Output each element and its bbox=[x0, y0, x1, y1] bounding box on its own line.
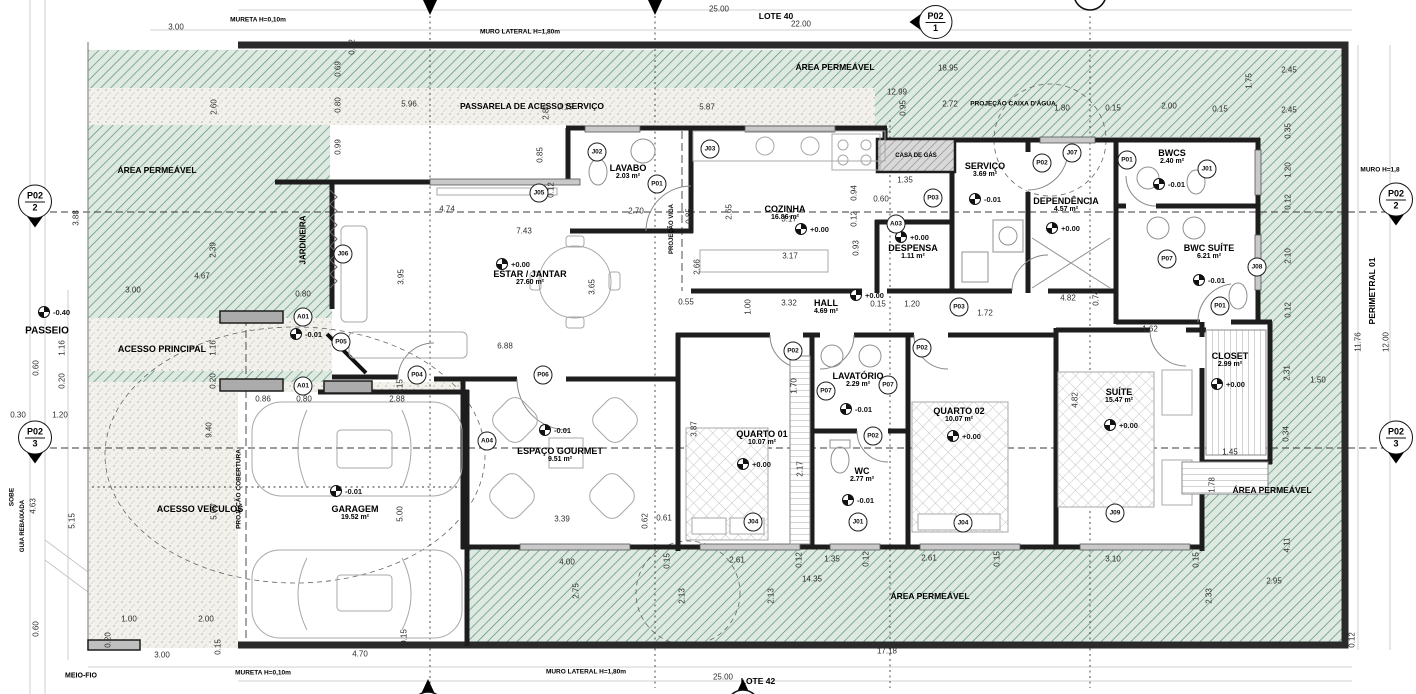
dimension-text: 2.80 bbox=[542, 104, 551, 120]
door-window-marker: P02 bbox=[784, 342, 803, 361]
door-window-marker: J01 bbox=[849, 513, 868, 532]
dimension-text: 0.15 bbox=[396, 379, 405, 395]
dimension-text: 25.00 bbox=[713, 673, 733, 682]
level-value: +0.00 bbox=[1119, 421, 1138, 430]
dimension-text: 1.00 bbox=[121, 615, 137, 624]
section-id: P02 bbox=[25, 427, 45, 438]
closet-shelves bbox=[1206, 330, 1266, 455]
room-name: COZINHA bbox=[765, 204, 806, 214]
room-area: 2.99 m² bbox=[1212, 361, 1249, 369]
dimension-text: 3.95 bbox=[397, 269, 406, 285]
dimension-text: 0.80 bbox=[295, 290, 311, 299]
room-name: HALL bbox=[814, 298, 838, 308]
level-symbol-icon bbox=[737, 458, 749, 470]
level-marker: -0.40 bbox=[38, 306, 70, 318]
mureta-label-top: MURETA H=0,10m bbox=[230, 17, 286, 24]
dimension-text: 4.82 bbox=[1071, 392, 1080, 408]
section-id: P02 bbox=[925, 12, 945, 23]
level-symbol-icon bbox=[850, 289, 862, 301]
door-window-marker: J05 bbox=[530, 184, 549, 203]
dimension-text: 0.15 bbox=[1192, 552, 1201, 568]
dimension-text: 11.76 bbox=[1354, 332, 1363, 351]
dimension-text: 3.39 bbox=[554, 515, 570, 524]
perimetral-label: PERIMETRAL 01 bbox=[1367, 258, 1377, 325]
dimension-text: 0.61 bbox=[656, 514, 672, 523]
level-symbol-icon bbox=[1153, 178, 1165, 190]
meio-fio-label: MEIO-FIO bbox=[65, 673, 97, 680]
dimension-text: 5.15 bbox=[68, 513, 77, 529]
section-circle: P023 bbox=[18, 421, 52, 455]
room-area: 4.69 m² bbox=[814, 308, 838, 316]
level-symbol-icon bbox=[842, 494, 854, 506]
level-marker: -0.01 bbox=[842, 494, 874, 506]
room-area: 15.47 m² bbox=[1105, 397, 1133, 405]
dimension-text: 2.60 bbox=[210, 99, 219, 115]
dimension-text: 0.80 bbox=[334, 97, 343, 113]
section-number: 3 bbox=[1393, 438, 1398, 448]
door-window-marker: A03 bbox=[887, 215, 906, 234]
dimension-text: 0.15 bbox=[993, 551, 1002, 567]
level-marker: -0.01 bbox=[840, 403, 872, 415]
lote-42-label: LOTE 42 bbox=[741, 676, 775, 686]
section-circle: P023 bbox=[1379, 421, 1413, 455]
dimension-text: 4.82 bbox=[1060, 294, 1076, 303]
section-id: P02 bbox=[1386, 189, 1406, 200]
dimension-text: 0.94 bbox=[850, 185, 859, 201]
level-symbol-icon bbox=[1193, 274, 1205, 286]
dimension-text: 0.34 bbox=[1282, 426, 1291, 442]
door-window-marker: P07 bbox=[817, 382, 836, 401]
dimension-text: 2.45 bbox=[1281, 66, 1297, 75]
dimension-text: 0.15 bbox=[557, 103, 573, 112]
level-marker: +0.00 bbox=[947, 430, 981, 442]
level-marker: -0.01 bbox=[969, 193, 1001, 205]
level-marker: -0.01 bbox=[330, 485, 362, 497]
room-name: QUARTO 01 bbox=[736, 429, 787, 439]
dimension-text: 2.10 bbox=[1284, 248, 1293, 264]
dimension-text: 1.62 bbox=[1142, 325, 1158, 334]
dimension-text: 3.87 bbox=[690, 421, 699, 437]
door-window-marker: P06 bbox=[534, 366, 553, 385]
area-permeavel-label-right: ÁREA PERMEÁVEL bbox=[1232, 485, 1311, 495]
level-value: +0.00 bbox=[1061, 224, 1080, 233]
door-window-marker: P04 bbox=[408, 366, 427, 385]
section-cut-marker: P021 bbox=[910, 5, 953, 39]
dimension-text: 0.20 bbox=[209, 373, 218, 389]
dimension-text: 0.85 bbox=[685, 208, 694, 224]
level-value: +0.00 bbox=[910, 233, 929, 242]
dimension-text: 1.20 bbox=[904, 300, 920, 309]
dimension-text: 0.93 bbox=[852, 240, 861, 256]
room-name: DESPENSA bbox=[888, 243, 938, 253]
dimension-text: 0.74 bbox=[1092, 290, 1101, 306]
room-area: 2.29 m² bbox=[833, 381, 884, 389]
sobe-label: SOBE bbox=[9, 488, 16, 506]
room-area: 3.69 m² bbox=[965, 171, 1005, 179]
door-window-marker: P03 bbox=[950, 298, 969, 317]
dimension-text: 3.88 bbox=[72, 210, 81, 226]
dimension-text: 0.12 bbox=[1284, 302, 1293, 318]
dimension-text: 5.96 bbox=[401, 100, 417, 109]
room-label: CLOSET2.99 m² bbox=[1212, 351, 1249, 369]
dimension-text: 1.16 bbox=[58, 340, 67, 356]
door-window-marker: P01 bbox=[648, 175, 667, 194]
dimension-text: 1.20 bbox=[52, 411, 68, 420]
dimension-text: 3.17 bbox=[782, 252, 798, 261]
dimension-text: 0.12 bbox=[1348, 632, 1357, 648]
door-window-marker: P07 bbox=[1158, 250, 1177, 269]
dimension-text: 0.60 bbox=[873, 195, 889, 204]
room-label: ESTAR / JANTAR27.60 m² bbox=[493, 269, 566, 287]
level-marker: -0.01 bbox=[290, 328, 322, 340]
section-id: P02 bbox=[25, 191, 45, 202]
level-value: +0.00 bbox=[1226, 380, 1245, 389]
projecao-cobertura-label: PROJEÇÃO COBERTURA bbox=[236, 449, 243, 529]
dimension-text: 1.78 bbox=[1208, 477, 1217, 493]
room-label: LAVATÓRIO2.29 m² bbox=[833, 371, 884, 389]
dimension-text: 5.00 bbox=[210, 504, 219, 520]
dimension-text: 0.85 bbox=[536, 147, 545, 163]
level-value: -0.01 bbox=[857, 496, 874, 505]
dimension-text: 2.31 bbox=[1283, 365, 1292, 381]
dimension-text: 0.12 bbox=[795, 552, 804, 568]
room-name: BWC SUÍTE bbox=[1184, 243, 1235, 253]
dimension-text: 3.00 bbox=[154, 651, 170, 660]
door-window-marker: J01 bbox=[1198, 160, 1217, 179]
dimension-text: 2.61 bbox=[921, 554, 937, 563]
dimension-text: 2.00 bbox=[1161, 102, 1177, 111]
room-name: CLOSET bbox=[1212, 351, 1249, 361]
room-area: 2.03 m² bbox=[610, 173, 647, 181]
door-window-marker: P02 bbox=[1033, 154, 1052, 173]
level-value: +0.00 bbox=[752, 460, 771, 469]
dimension-text: 2.45 bbox=[1281, 106, 1297, 115]
door-window-marker: J08 bbox=[1248, 258, 1267, 277]
room-area: 10.07 m² bbox=[736, 439, 787, 447]
dimension-text: 25.00 bbox=[709, 5, 729, 14]
dimension-text: 4.70 bbox=[352, 650, 368, 659]
room-name: ESTAR / JANTAR bbox=[493, 269, 566, 279]
mureta-label-bottom: MURETA H=0,10m bbox=[235, 670, 291, 677]
level-value: -0.40 bbox=[53, 308, 70, 317]
room-label: GARAGEM19.52 m² bbox=[332, 504, 379, 522]
door-window-marker: J09 bbox=[1106, 504, 1125, 523]
dimension-text: 0.15 bbox=[214, 639, 223, 655]
level-value: +0.00 bbox=[810, 225, 829, 234]
door-window-marker: A01 bbox=[294, 308, 313, 327]
dimension-text: 0.35 bbox=[1284, 123, 1293, 139]
dimension-text: 0.15 bbox=[400, 629, 409, 645]
dimension-text: 1.35 bbox=[897, 176, 913, 185]
level-value: -0.01 bbox=[855, 405, 872, 414]
dimension-text: 12.00 bbox=[1382, 332, 1391, 352]
level-marker: +0.00 bbox=[737, 458, 771, 470]
level-marker: +0.00 bbox=[895, 231, 929, 243]
level-value: -0.01 bbox=[984, 195, 1001, 204]
muro-direito-label: MURO H=1,8 bbox=[1360, 167, 1399, 174]
dimension-text: 2.00 bbox=[198, 615, 214, 624]
dimension-text: 0.60 bbox=[32, 621, 41, 637]
section-cut-marker: P023 bbox=[18, 421, 52, 464]
dimension-text: 4.00 bbox=[559, 558, 575, 567]
jardineira-label: JARDINEIRA bbox=[299, 216, 308, 265]
level-symbol-icon bbox=[840, 403, 852, 415]
door-window-marker: J02 bbox=[588, 143, 607, 162]
dimension-text: 1.00 bbox=[744, 299, 753, 315]
level-symbol-icon bbox=[539, 424, 551, 436]
dimension-text: 0.60 bbox=[32, 360, 41, 376]
dimension-text: 5.00 bbox=[396, 506, 405, 522]
section-cut-marker: P022 bbox=[18, 185, 52, 228]
dimension-text: 0.55 bbox=[678, 298, 694, 307]
level-symbol-icon bbox=[330, 485, 342, 497]
level-symbol-icon bbox=[496, 258, 508, 270]
dimension-text: 1.72 bbox=[977, 309, 993, 318]
room-name: ESPAÇO GOURMET bbox=[517, 446, 603, 456]
level-value: +0.00 bbox=[865, 291, 884, 300]
dimension-text: 0.62 bbox=[641, 513, 650, 529]
room-area: 10.07 m² bbox=[933, 416, 984, 424]
dimension-text: 3.65 bbox=[588, 279, 597, 295]
dimension-text: 0.15 bbox=[1105, 104, 1121, 113]
room-area: 2.40 m² bbox=[1158, 158, 1186, 166]
level-value: +0.00 bbox=[962, 432, 981, 441]
dimension-text: 14.35 bbox=[802, 575, 822, 584]
dimension-text: 2.95 bbox=[1266, 577, 1282, 586]
room-label: LAVABO2.03 m² bbox=[610, 163, 647, 181]
room-label: BWC SUÍTE6.21 m² bbox=[1184, 243, 1235, 261]
room-name: BWCS bbox=[1158, 148, 1186, 158]
door-window-marker: P01 bbox=[1211, 297, 1230, 316]
room-area: 27.60 m² bbox=[493, 279, 566, 287]
room-name: LAVABO bbox=[610, 163, 647, 173]
casa-de-gas-label: CASA DE GÁS bbox=[895, 153, 936, 159]
dimension-text: 1.16 bbox=[209, 340, 218, 356]
door-window-marker: A04 bbox=[478, 432, 497, 451]
level-marker: -0.01 bbox=[1153, 178, 1185, 190]
dimension-text: 2.17 bbox=[796, 461, 805, 477]
room-label: QUARTO 0210.07 m² bbox=[933, 406, 984, 424]
door-window-marker: P02 bbox=[864, 427, 883, 446]
passeio-label: PASSEIO bbox=[25, 326, 69, 337]
section-cut-marker: P023 bbox=[1379, 421, 1413, 464]
room-area: 2.77 m² bbox=[850, 476, 874, 484]
level-marker: +0.00 bbox=[795, 223, 829, 235]
dimension-text: 0.69 bbox=[334, 61, 343, 77]
section-circle: P022 bbox=[18, 185, 52, 219]
room-label: QUARTO 0110.07 m² bbox=[736, 429, 787, 447]
dimension-text: 0.99 bbox=[334, 139, 343, 155]
dimension-text: 4.67 bbox=[194, 272, 210, 281]
door-window-marker: P02 bbox=[913, 339, 932, 358]
section-number: 2 bbox=[32, 202, 37, 212]
dimension-text: 2.33 bbox=[1205, 588, 1214, 604]
dimension-text: 1.35 bbox=[824, 555, 840, 564]
dimension-text: 2.75 bbox=[572, 583, 581, 599]
section-circle: P021 bbox=[919, 5, 953, 39]
level-symbol-icon bbox=[795, 223, 807, 235]
room-label: SERVIÇO3.69 m² bbox=[965, 161, 1005, 179]
section-id: P02 bbox=[1386, 427, 1406, 438]
dimension-text: 0.12 bbox=[348, 39, 357, 55]
dimension-text: 0.15 bbox=[1212, 105, 1228, 114]
dimension-text: 2.61 bbox=[729, 556, 745, 565]
level-value: -0.01 bbox=[1208, 276, 1225, 285]
door-window-marker: J06 bbox=[334, 245, 353, 264]
dimension-text: 4.11 bbox=[1283, 538, 1292, 553]
level-symbol-icon bbox=[1104, 419, 1116, 431]
level-marker: +0.00 bbox=[1046, 222, 1080, 234]
dimension-text: 2.88 bbox=[389, 395, 405, 404]
dimension-text: 0.95 bbox=[899, 100, 908, 116]
area-permeavel-label-left: ÁREA PERMEÁVEL bbox=[117, 165, 196, 175]
door-window-marker: P07 bbox=[879, 376, 898, 395]
room-name: DEPENDÊNCIA bbox=[1033, 196, 1099, 206]
dimension-text: 0.20 bbox=[104, 632, 113, 648]
dimension-text: 0.80 bbox=[296, 395, 312, 404]
room-label: BWCS2.40 m² bbox=[1158, 148, 1186, 166]
dimension-text: 0.30 bbox=[10, 411, 26, 420]
dimension-text: 3.17 bbox=[781, 215, 797, 224]
dimension-text: 3.10 bbox=[1105, 555, 1121, 564]
dimension-text: 2.13 bbox=[678, 588, 687, 604]
level-marker: +0.00 bbox=[1211, 378, 1245, 390]
door-window-marker: J07 bbox=[1063, 144, 1082, 163]
room-name: QUARTO 02 bbox=[933, 406, 984, 416]
level-value: +0.00 bbox=[511, 260, 530, 269]
dimension-text: 18.95 bbox=[938, 64, 958, 73]
door-window-marker: J04 bbox=[744, 513, 763, 532]
section-number: 3 bbox=[32, 438, 37, 448]
acesso-veiculos-label: ACESSO VEÍCULOS bbox=[157, 504, 244, 514]
section-circle: P022 bbox=[1379, 183, 1413, 217]
dimension-text: 0.15 bbox=[663, 553, 672, 569]
passarela-label: PASSARELA DE ACESSO SERVIÇO bbox=[460, 101, 604, 111]
dimension-text: 0.15 bbox=[870, 300, 886, 309]
dimension-text: 0.86 bbox=[255, 395, 271, 404]
dimension-text: 1.80 bbox=[1054, 104, 1070, 113]
dimension-text: 3.00 bbox=[168, 23, 184, 32]
door-window-marker: J03 bbox=[701, 140, 720, 159]
level-value: -0.01 bbox=[305, 330, 322, 339]
level-marker: +0.00 bbox=[496, 258, 530, 270]
dimension-text: 2.39 bbox=[209, 242, 218, 258]
dimension-text: 17.18 bbox=[877, 647, 897, 656]
room-label: SUÍTE15.47 m² bbox=[1105, 387, 1133, 405]
section-number: 2 bbox=[1393, 200, 1398, 210]
level-marker: -0.01 bbox=[1193, 274, 1225, 286]
area-permeavel-label-top: ÁREA PERMEÁVEL bbox=[795, 62, 874, 72]
dimension-text: 2.72 bbox=[942, 100, 958, 109]
projecao-viga-label: PROJEÇÃO VIGA bbox=[669, 204, 675, 254]
level-symbol-icon bbox=[947, 430, 959, 442]
dimension-text: 6.88 bbox=[497, 342, 513, 351]
dimension-text: 5.87 bbox=[699, 103, 715, 112]
dimension-text: 0.12 bbox=[862, 551, 871, 567]
room-name: SERVIÇO bbox=[965, 161, 1005, 171]
dimension-text: 4.63 bbox=[29, 498, 38, 514]
dimension-text: 0.12 bbox=[850, 211, 859, 227]
dimension-text: 3.00 bbox=[125, 286, 141, 295]
dimension-text: 2.13 bbox=[767, 588, 776, 604]
dimension-text: 1.75 bbox=[1245, 73, 1254, 89]
room-label: DESPENSA1.11 m² bbox=[888, 243, 938, 261]
door-window-marker: J04 bbox=[954, 514, 973, 533]
dimension-text: 7.43 bbox=[516, 227, 532, 236]
room-label: ESPAÇO GOURMET9.51 m² bbox=[517, 446, 603, 464]
lote-40-label: LOTE 40 bbox=[759, 11, 793, 21]
level-value: -0.01 bbox=[554, 426, 571, 435]
room-label: HALL4.69 m² bbox=[814, 298, 838, 316]
dimension-text: 1.50 bbox=[1310, 376, 1326, 385]
door-window-marker: A01 bbox=[294, 377, 313, 396]
level-symbol-icon bbox=[38, 306, 50, 318]
room-area: 19.52 m² bbox=[332, 514, 379, 522]
level-marker: -0.01 bbox=[539, 424, 571, 436]
projecao-caixa-dagua-label: PROJEÇÃO CAIXA D'ÁGUA bbox=[970, 101, 1055, 108]
dimension-text: 0.20 bbox=[58, 373, 67, 389]
dimension-text: 2.66 bbox=[693, 259, 702, 275]
guia-rebaixada-label: GUIA REBAIXADA bbox=[20, 500, 26, 552]
dimension-text: 9.40 bbox=[205, 422, 214, 438]
dimension-text: 3.32 bbox=[781, 299, 797, 308]
dimension-text: 2.70 bbox=[628, 207, 644, 216]
level-value: -0.01 bbox=[1168, 180, 1185, 189]
dimension-text: 1.70 bbox=[790, 378, 799, 394]
door-window-marker: P01 bbox=[1118, 151, 1137, 170]
level-symbol-icon bbox=[969, 193, 981, 205]
floorplan-canvas: ÁREA PERMEÁVEL ÁREA PERMEÁVEL ÁREA PERME… bbox=[0, 0, 1416, 694]
room-label: DEPENDÊNCIA4.57 m² bbox=[1033, 196, 1099, 214]
dimension-text: 4.74 bbox=[439, 205, 455, 214]
dimension-text: 0.12 bbox=[1284, 194, 1293, 210]
room-area: 4.57 m² bbox=[1033, 206, 1099, 214]
level-symbol-icon bbox=[290, 328, 302, 340]
level-symbol-icon bbox=[1211, 378, 1223, 390]
room-name: WC bbox=[850, 466, 874, 476]
room-area: 9.51 m² bbox=[517, 456, 603, 464]
acesso-principal-label: ACESSO PRINCIPAL bbox=[118, 344, 206, 354]
dimension-text: 12.99 bbox=[887, 88, 907, 97]
level-marker: +0.00 bbox=[1104, 419, 1138, 431]
dimension-text: 22.00 bbox=[791, 20, 811, 29]
section-number: 1 bbox=[933, 23, 938, 33]
room-name: LAVATÓRIO bbox=[833, 371, 884, 381]
dimension-text: 2.65 bbox=[725, 204, 734, 220]
room-label: WC2.77 m² bbox=[850, 466, 874, 484]
level-symbol-icon bbox=[1046, 222, 1058, 234]
dimension-text: 1.20 bbox=[1284, 162, 1293, 178]
section-cut-marker: P022 bbox=[1379, 183, 1413, 226]
dimension-text: 1.45 bbox=[1222, 448, 1238, 457]
room-name: GARAGEM bbox=[332, 504, 379, 514]
level-value: -0.01 bbox=[345, 487, 362, 496]
area-permeavel-label-bottom: ÁREA PERMEÁVEL bbox=[890, 591, 969, 601]
mureta-wall-piece bbox=[88, 640, 140, 650]
room-name: SUÍTE bbox=[1105, 387, 1133, 397]
door-window-marker: P05 bbox=[332, 333, 351, 352]
muro-lateral-label-bottom: MURO LATERAL H=1,80m bbox=[546, 669, 626, 676]
muro-lateral-label-top: MURO LATERAL H=1,80m bbox=[480, 29, 560, 36]
room-area: 1.11 m² bbox=[888, 253, 938, 261]
room-area: 6.21 m² bbox=[1184, 253, 1235, 261]
door-window-marker: P03 bbox=[924, 189, 943, 208]
